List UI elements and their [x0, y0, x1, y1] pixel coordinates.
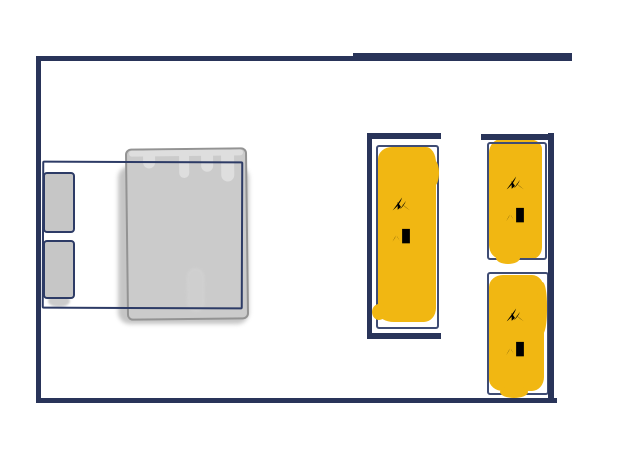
room-wall-right — [548, 133, 554, 403]
room-wall-top — [36, 56, 355, 61]
closet-alcove-top-wall — [481, 134, 553, 140]
yi-clothes-character-icon — [505, 303, 525, 323]
gui-cabinet-character-icon — [505, 338, 525, 358]
closet-niche-top-wall — [367, 133, 441, 139]
closet-niche-bottom-wall — [367, 333, 441, 339]
room-wall-left — [36, 56, 41, 403]
yi-clothes-character-icon — [391, 192, 411, 212]
wardrobe-label: 衣柜 — [391, 192, 411, 245]
wardrobe-label: 衣柜 — [505, 303, 525, 358]
wardrobe-label: 衣柜 — [505, 171, 525, 224]
gui-cabinet-character-icon — [391, 225, 411, 245]
room-wall-bottom — [36, 398, 557, 403]
pillow — [43, 172, 75, 233]
yi-clothes-character-icon — [505, 171, 525, 191]
room-wall-top-overstroke — [353, 53, 572, 61]
pillow — [43, 240, 75, 299]
closet-niche-left-wall — [367, 133, 372, 339]
gui-cabinet-character-icon — [505, 204, 525, 224]
floorplan-canvas: 衣柜 衣柜 衣柜 — [0, 0, 640, 454]
